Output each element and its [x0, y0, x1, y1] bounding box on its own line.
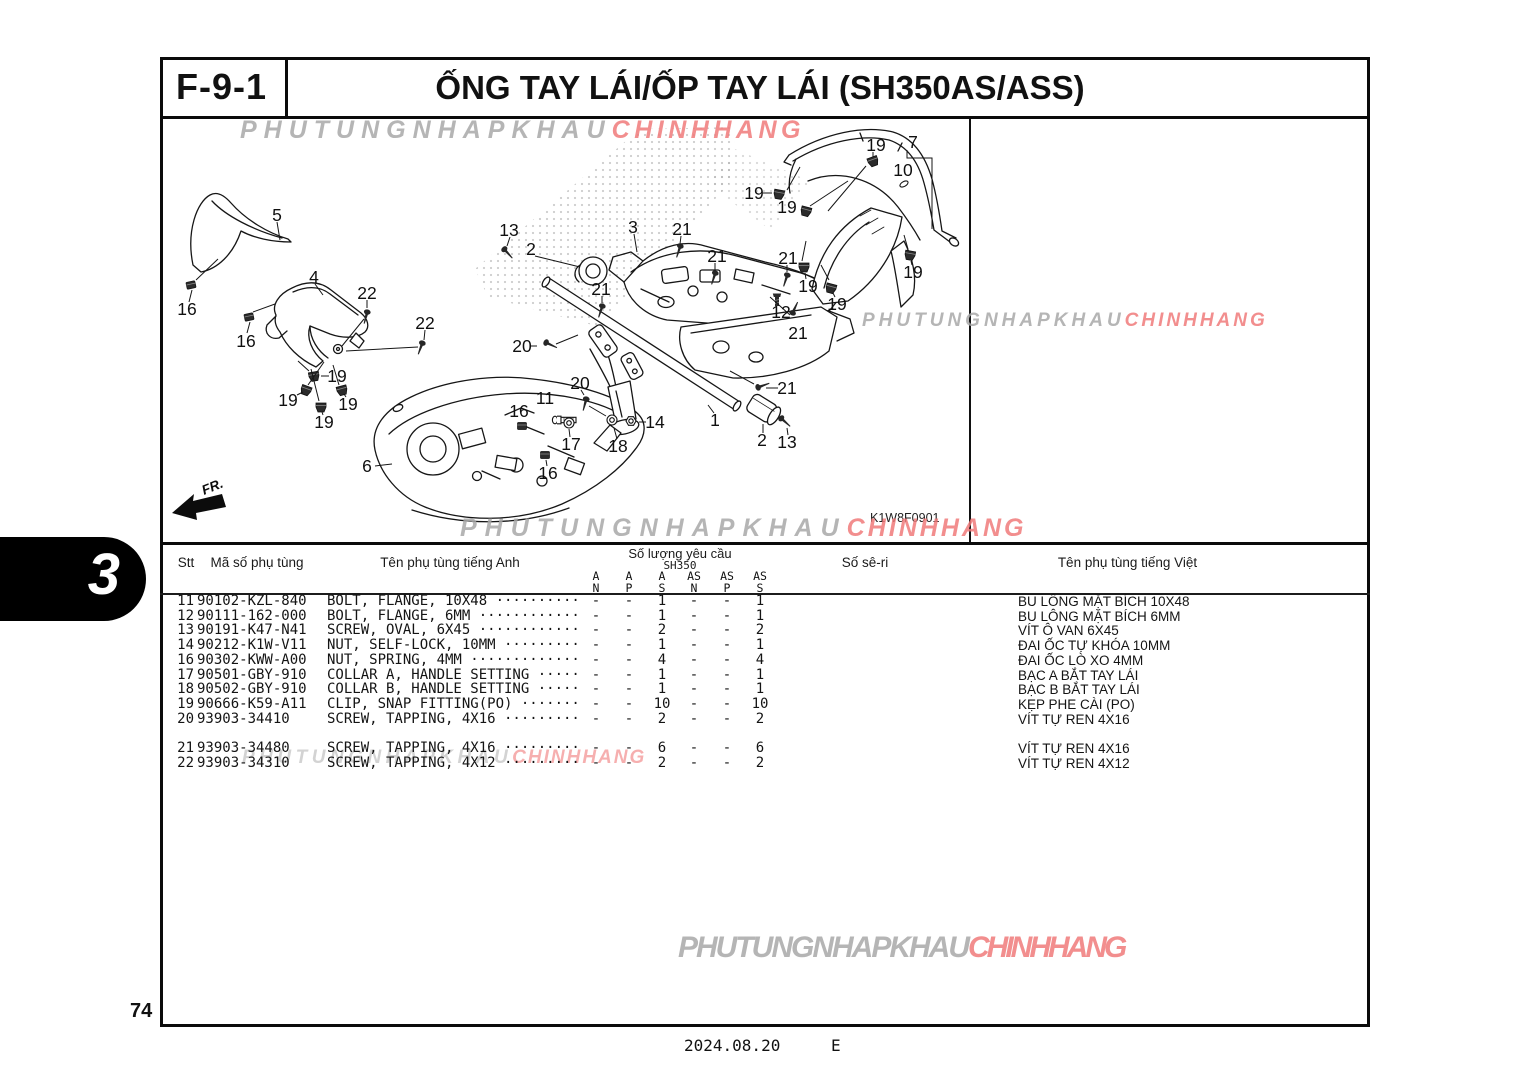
cell-name-vi: BU LÔNG MẶT BÍCH 10X48 [1018, 594, 1190, 609]
cell-stt: 11 [168, 594, 194, 609]
part-callout-20: 20 [512, 336, 532, 356]
cell-name-vi: VÍT TỰ REN 4X16 [1018, 712, 1130, 727]
cell-part-code: 90302-KWW-A00 [197, 653, 307, 668]
part-callout-3: 3 [628, 217, 638, 237]
cell-name-vi: BU LÔNG MẶT BÍCH 6MM [1018, 609, 1181, 624]
part-callout-16: 16 [236, 331, 255, 351]
table-row: 1990666-K59-A11CLIP, SNAP FITTING(PO) ··… [0, 697, 1528, 712]
cell-qty: - [613, 712, 645, 727]
part-callout-4: 4 [309, 267, 319, 287]
part-callout-2: 2 [526, 239, 536, 259]
part-callout-21: 21 [672, 219, 691, 239]
cell-qty: 4 [646, 653, 678, 668]
parts-diagram: FR. K1W8F0901 51616422221919191961323212… [160, 119, 1367, 543]
cell-qty: - [678, 756, 710, 771]
part-callout-6: 6 [362, 456, 372, 476]
part-callout-13: 13 [499, 220, 518, 240]
part-callout-20: 20 [570, 373, 590, 393]
cell-qty: 1 [646, 594, 678, 609]
part-3-upper-cover [609, 244, 854, 379]
cell-part-code: 90102-KZL-840 [197, 594, 307, 609]
table-row: 1190102-KZL-840BOLT, FLANGE, 10X48 ·····… [0, 594, 1528, 609]
part-callout-21: 21 [591, 279, 610, 299]
cell-qty: - [711, 712, 743, 727]
col-header-qty-ap: AP [613, 570, 645, 594]
cell-qty: - [678, 594, 710, 609]
cell-qty: - [613, 653, 645, 668]
table-row: 2093903-34410SCREW, TAPPING, 4X16 ······… [0, 712, 1528, 727]
part-callout-19: 19 [278, 390, 297, 410]
table-row: 1690302-KWW-A00NUT, SPRING, 4MM ········… [0, 653, 1528, 668]
part-callout-19: 19 [327, 366, 346, 386]
cell-qty: - [678, 712, 710, 727]
col-header-qty-asp: ASP [711, 570, 743, 594]
footer-revision: E [831, 1036, 841, 1055]
cell-name-vi: BẠC B BẮT TAY LÁI [1018, 682, 1140, 697]
part-callout-19: 19 [827, 294, 846, 314]
part-callout-1: 1 [710, 410, 720, 430]
cell-qty: - [613, 697, 645, 712]
cell-qty: - [678, 638, 710, 653]
part-callout-22: 22 [415, 313, 434, 333]
cell-name-vi: ĐAI ỐC LÒ XO 4MM [1018, 653, 1143, 668]
cell-qty: - [678, 697, 710, 712]
cell-qty: 10 [744, 697, 776, 712]
part-callout-10: 10 [893, 160, 913, 180]
cell-qty: - [711, 638, 743, 653]
col-header-qty-as: AS [646, 570, 678, 594]
part-callout-17: 17 [561, 434, 580, 454]
cell-name-en: BOLT, FLANGE, 10X48 ·········· [327, 594, 580, 609]
cell-name-vi: BẠC A BẮT TAY LÁI [1018, 668, 1138, 683]
table-top-rule [160, 542, 1370, 545]
part-4-front-cover [266, 283, 368, 367]
cell-qty: - [678, 653, 710, 668]
table-row: 2293903-34310SCREW, TAPPING, 4X12 ······… [0, 756, 1528, 771]
part-callout-2: 2 [757, 430, 767, 450]
part-callout-19: 19 [866, 135, 885, 155]
cell-name-vi: ĐAI ỐC TỰ KHÓA 10MM [1018, 638, 1170, 653]
cell-part-code: 93903-34310 [197, 756, 290, 771]
cell-name-vi: KẸP PHE CÀI (PO) [1018, 697, 1135, 712]
cell-qty: 2 [744, 712, 776, 727]
cell-stt: 14 [168, 638, 194, 653]
part-callout-19: 19 [777, 197, 796, 217]
cell-qty: - [580, 638, 612, 653]
cell-qty: - [580, 756, 612, 771]
part-callout-12: 12 [771, 302, 790, 322]
cell-qty: - [613, 638, 645, 653]
cell-qty: - [580, 594, 612, 609]
fr-arrow: FR. [172, 476, 226, 520]
cell-qty: - [580, 712, 612, 727]
cell-stt: 22 [168, 756, 194, 771]
cell-qty: - [613, 756, 645, 771]
cell-stt: 16 [168, 653, 194, 668]
cell-qty: 2 [744, 756, 776, 771]
cell-stt: 19 [168, 697, 194, 712]
part-callout-11: 11 [536, 388, 554, 408]
cell-qty: - [711, 697, 743, 712]
cell-name-en: SCREW, TAPPING, 4X16 ········· [327, 712, 580, 727]
col-header-qty-asn: ASN [678, 570, 710, 594]
diagram-code: K1W8F0901 [870, 511, 940, 525]
cell-name-en: NUT, SPRING, 4MM ············· [327, 653, 580, 668]
table-row: 1490212-K1W-V11NUT, SELF-LOCK, 10MM ····… [0, 638, 1528, 653]
cell-qty: 1 [744, 594, 776, 609]
part-callout-16: 16 [538, 463, 557, 483]
part-callout-16: 16 [177, 299, 196, 319]
col-header-code: Mã số phụ tùng [192, 555, 322, 570]
chapter-tab-number: 3 [88, 541, 120, 608]
cell-name-vi: VÍT TỰ REN 4X16 [1018, 741, 1130, 756]
part-callout-19: 19 [798, 276, 817, 296]
section-code: F-9-1 [176, 66, 267, 108]
part-callout-5: 5 [272, 205, 282, 225]
col-header-serial: Số sê-ri [800, 555, 930, 570]
cell-name-en: NUT, SELF-LOCK, 10MM ········· [327, 638, 580, 653]
part-callout-21: 21 [788, 323, 807, 343]
part-callout-19: 19 [314, 412, 333, 432]
part-callout-22: 22 [357, 283, 376, 303]
part-callout-16: 16 [509, 401, 528, 421]
cell-stt: 20 [168, 712, 194, 727]
part-callout-21: 21 [707, 246, 726, 266]
cell-qty: 2 [646, 756, 678, 771]
cell-part-code: 90212-K1W-V11 [197, 638, 307, 653]
chapter-tab: 3 [0, 537, 146, 621]
cell-part-code: 90666-K59-A11 [197, 697, 307, 712]
cell-name-en: SCREW, TAPPING, 4X12 ········· [327, 756, 580, 771]
cell-qty: - [711, 594, 743, 609]
cell-qty: 4 [744, 653, 776, 668]
catalog-page: F-9-1 ỐNG TAY LÁI/ỐP TAY LÁI (SH350AS/AS… [0, 0, 1528, 1080]
cell-name-vi: VÍT Ô VAN 6X45 [1018, 623, 1119, 638]
part-callout-7: 7 [908, 132, 918, 152]
part-callout-13: 13 [777, 432, 796, 452]
cell-qty: 2 [646, 712, 678, 727]
cell-qty: 1 [744, 638, 776, 653]
col-header-qty-an: AN [580, 570, 612, 594]
part-callout-18: 18 [608, 436, 627, 456]
page-number: 74 [130, 1000, 152, 1023]
col-header-name-vi: Tên phụ tùng tiếng Việt [1015, 555, 1240, 570]
cell-part-code: 93903-34410 [197, 712, 290, 727]
part-callout-19: 19 [903, 262, 922, 282]
cell-name-vi: VÍT TỰ REN 4X12 [1018, 756, 1130, 771]
page-title: ỐNG TAY LÁI/ỐP TAY LÁI (SH350AS/ASS) [288, 69, 1232, 107]
cell-name-en: CLIP, SNAP FITTING(PO) ······· [327, 697, 580, 712]
part-callout-19: 19 [744, 183, 763, 203]
part-callout-21: 21 [777, 378, 796, 398]
part-callout-21: 21 [778, 248, 797, 268]
cell-qty: 10 [646, 697, 678, 712]
part-callout-19: 19 [338, 394, 357, 414]
cell-qty: - [580, 653, 612, 668]
col-header-qty-ass: ASS [744, 570, 776, 594]
cell-qty: - [613, 594, 645, 609]
part-callout-14: 14 [645, 412, 665, 432]
col-header-name-en: Tên phụ tùng tiếng Anh [330, 555, 570, 570]
cell-qty: - [580, 697, 612, 712]
cell-qty: 1 [646, 638, 678, 653]
cell-qty: - [711, 756, 743, 771]
cell-qty: - [711, 653, 743, 668]
footer-date: 2024.08.20 [684, 1036, 780, 1055]
